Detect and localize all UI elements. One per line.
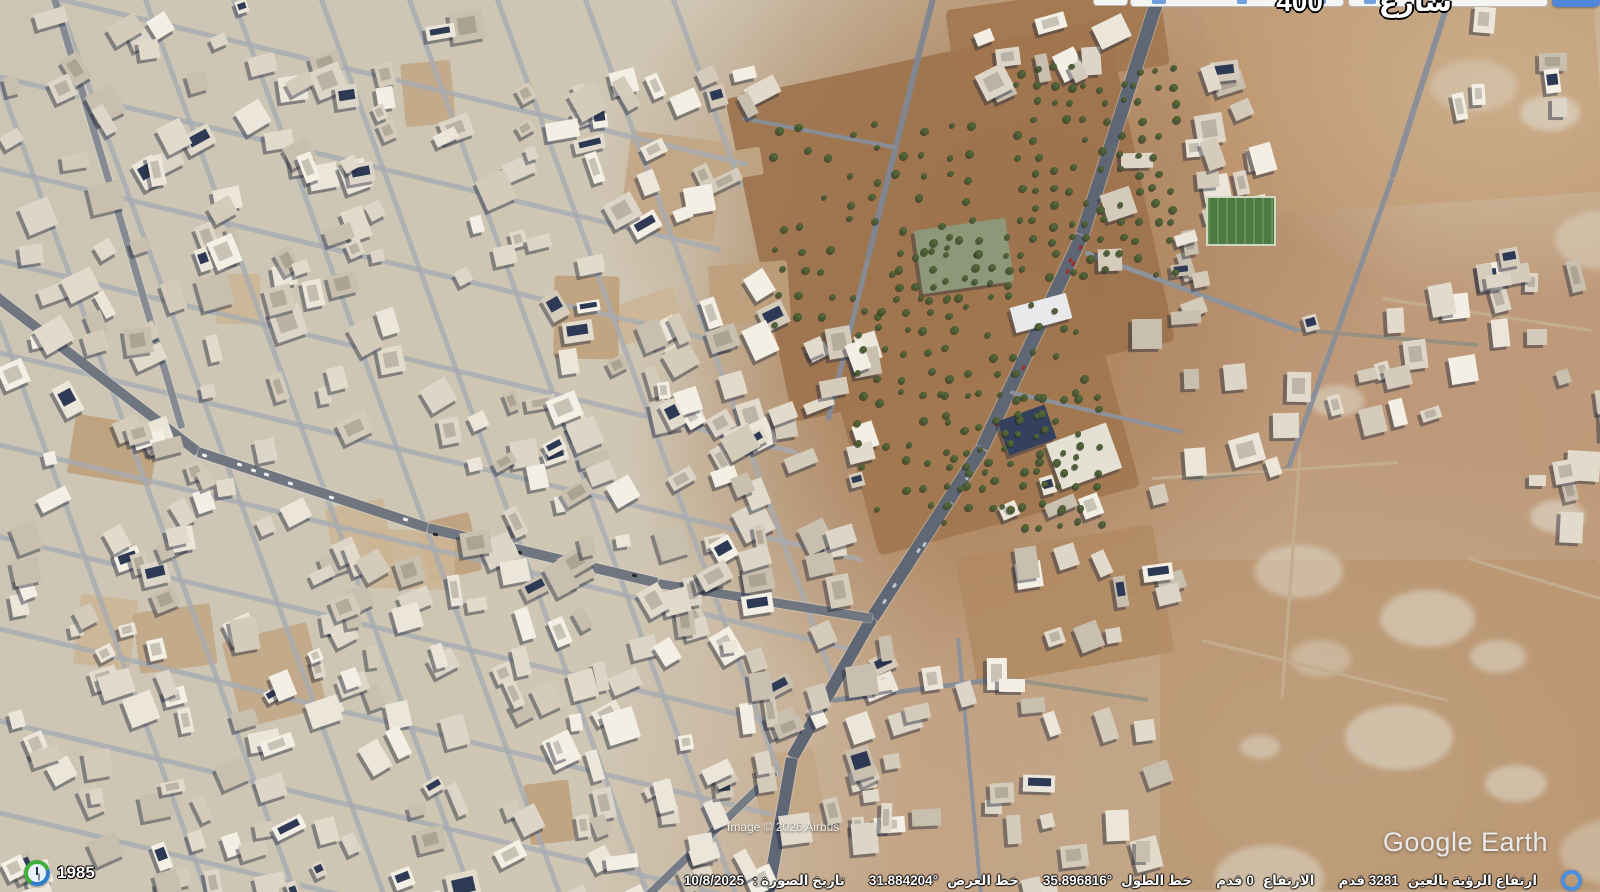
toolbar-blue-button[interactable]: [1552, 0, 1600, 7]
tree: [1004, 253, 1009, 258]
tree: [1167, 237, 1173, 243]
tree: [1002, 446, 1007, 451]
tree: [1058, 523, 1063, 528]
tree: [1046, 273, 1054, 281]
tree: [1116, 250, 1123, 257]
tree: [1078, 505, 1084, 511]
tree: [916, 194, 924, 202]
street-name-label: شارع 400: [1092, 0, 1452, 18]
tree: [901, 351, 907, 357]
tree: [1098, 236, 1104, 242]
tree: [991, 477, 998, 484]
tree: [899, 377, 906, 384]
tree: [1074, 329, 1080, 335]
tree: [1170, 84, 1178, 92]
tree: [920, 392, 927, 399]
tree: [876, 324, 881, 329]
tree: [1172, 269, 1179, 276]
tree: [928, 309, 934, 315]
tree: [899, 389, 904, 394]
tree: [1034, 413, 1040, 419]
tree: [1139, 135, 1146, 142]
tree: [1099, 166, 1105, 172]
tree: [1156, 171, 1162, 177]
tree: [1118, 166, 1123, 171]
elevation-value: 0 قدم: [1216, 873, 1254, 889]
tree: [1121, 234, 1127, 240]
tree: [1168, 219, 1174, 225]
tree: [985, 332, 991, 338]
tree: [946, 375, 954, 383]
history-year-label: 1985: [57, 863, 95, 883]
tree: [1083, 234, 1090, 241]
longitude-field: خط الطول 35.896816°: [1043, 873, 1192, 889]
tree: [856, 332, 862, 338]
tree: [1150, 154, 1157, 161]
tree: [1139, 118, 1147, 126]
tree: [894, 296, 900, 302]
tree: [930, 239, 938, 247]
tree: [1097, 206, 1105, 214]
tree: [1118, 202, 1124, 208]
image-date-value: 10/8/2025: [684, 873, 744, 889]
tree: [1051, 185, 1057, 191]
tree: [1099, 521, 1106, 528]
tree: [1075, 395, 1083, 403]
eye-altitude-label: ارتفاع الرؤية بالعين: [1408, 873, 1537, 889]
imagery-credit: Image © 2026 Airbus: [727, 820, 839, 834]
tree: [1030, 137, 1037, 144]
tree: [1084, 200, 1089, 205]
tree: [1169, 206, 1177, 214]
tree: [919, 295, 925, 301]
tree: [883, 443, 890, 450]
tree: [968, 122, 976, 130]
tree: [903, 309, 910, 316]
tree: [951, 326, 959, 334]
tree: [1053, 418, 1059, 424]
tree: [1082, 221, 1088, 227]
tree: [1135, 254, 1143, 262]
tree: [1074, 454, 1080, 460]
tree: [931, 284, 937, 290]
elevation-field: الارتفاع 0 قدم: [1216, 873, 1314, 889]
tree: [1118, 218, 1125, 225]
tree: [1099, 147, 1107, 155]
eye-altitude-field: ارتفاع الرؤية بالعين 3281 قدم: [1338, 873, 1537, 889]
tree: [819, 313, 827, 321]
tree: [903, 487, 910, 494]
tree: [830, 294, 837, 301]
tree: [903, 456, 910, 463]
tree: [947, 234, 952, 239]
tree: [1058, 507, 1066, 515]
tree: [1033, 170, 1039, 176]
tree: [921, 248, 929, 256]
tree: [1136, 218, 1143, 225]
tree: [1137, 188, 1145, 196]
tree: [1061, 469, 1068, 476]
tree: [1018, 217, 1024, 223]
tree: [848, 202, 854, 208]
tree: [1103, 100, 1108, 105]
tree: [947, 464, 953, 470]
tree: [1080, 116, 1086, 122]
tree: [1104, 250, 1110, 256]
tree: [827, 246, 835, 254]
tree: [912, 283, 919, 290]
tree: [1014, 131, 1022, 139]
tree: [1029, 302, 1035, 308]
tree: [945, 483, 951, 489]
tree: [883, 346, 889, 352]
tree: [1035, 97, 1041, 103]
tree: [1040, 500, 1046, 506]
tree: [1117, 151, 1123, 157]
tree: [818, 269, 824, 275]
tree: [780, 266, 786, 272]
tree: [1005, 282, 1012, 289]
tree: [966, 150, 974, 158]
tree: [993, 417, 1001, 425]
tree: [854, 420, 861, 427]
tree: [875, 179, 882, 186]
tree: [1168, 188, 1174, 194]
tree: [976, 390, 982, 396]
tree: [1061, 450, 1066, 455]
tree: [1102, 266, 1109, 273]
tree: [1154, 272, 1159, 277]
tree: [1076, 431, 1082, 437]
tree: [929, 502, 935, 508]
tree: [944, 296, 951, 303]
tree: [1033, 205, 1039, 211]
tree: [805, 147, 812, 154]
image-date-field: تاريخ الصورة : 10/8/2025: [684, 873, 845, 889]
tree: [890, 271, 896, 277]
tree: [1022, 524, 1029, 531]
tree: [1036, 154, 1044, 162]
tree: [1036, 458, 1044, 466]
tree: [1036, 525, 1042, 531]
google-earth-viewport: شارع 400 Image © 2026 Airbus Google Eart…: [0, 0, 1600, 892]
tree: [1031, 117, 1036, 122]
tree: [872, 121, 878, 127]
tree: [943, 412, 950, 419]
tree: [907, 442, 912, 447]
tree: [1061, 325, 1068, 332]
tree: [1037, 450, 1045, 458]
tree: [855, 370, 861, 376]
tree: [965, 504, 972, 511]
tree: [975, 250, 982, 257]
tree: [1149, 184, 1156, 191]
tree: [1132, 238, 1138, 244]
tree: [990, 505, 997, 512]
tree: [1012, 370, 1020, 378]
tree: [1019, 503, 1026, 510]
tree: [1075, 518, 1081, 524]
tree: [1136, 153, 1142, 159]
tree: [929, 368, 936, 375]
tree: [951, 455, 959, 463]
tree: [1051, 201, 1058, 208]
tree: [1094, 483, 1101, 490]
tree: [1104, 118, 1111, 125]
tree: [1136, 172, 1144, 180]
tree: [770, 153, 778, 161]
tree: [972, 279, 978, 285]
tree: [1073, 483, 1079, 489]
tree: [963, 198, 970, 205]
tree: [1021, 468, 1029, 476]
tree: [930, 266, 937, 273]
sports-field: [1206, 196, 1276, 246]
tree: [939, 223, 946, 230]
tree: [860, 346, 867, 353]
longitude-label: خط الطول: [1121, 873, 1192, 889]
tree: [948, 171, 954, 177]
tree: [1034, 468, 1040, 474]
tree: [985, 459, 993, 467]
tree: [1029, 217, 1035, 223]
tree: [1015, 155, 1021, 161]
tree: [1066, 188, 1073, 195]
tree: [998, 392, 1003, 397]
tree: [963, 482, 971, 490]
tree: [1153, 68, 1158, 73]
tree: [980, 485, 987, 492]
tree: [961, 427, 969, 435]
tree: [920, 417, 928, 425]
tree: [963, 275, 968, 280]
tree: [896, 284, 904, 292]
tree: [945, 245, 950, 250]
tree: [1069, 64, 1075, 70]
tree: [919, 327, 927, 335]
tree: [964, 450, 970, 456]
tree: [781, 226, 788, 233]
tree: [1053, 250, 1060, 257]
tree: [942, 345, 949, 352]
tree: [946, 313, 952, 319]
tree: [1006, 292, 1012, 298]
tree: [1173, 116, 1181, 124]
tree: [1071, 269, 1077, 275]
tree: [1034, 81, 1041, 88]
tree: [965, 370, 972, 377]
image-date-label: تاريخ الصورة :: [753, 873, 845, 889]
tree: [944, 449, 950, 455]
tree: [847, 216, 852, 221]
tree: [944, 252, 949, 257]
elevation-label: الارتفاع: [1263, 873, 1315, 889]
tree: [948, 155, 953, 160]
tree: [1053, 459, 1061, 467]
tree: [1036, 66, 1042, 72]
tree: [874, 376, 881, 383]
tree: [776, 292, 782, 298]
map-trees-layer: [0, 0, 1600, 892]
tree: [1156, 218, 1164, 226]
tree: [1033, 188, 1038, 193]
tree: [1000, 504, 1005, 509]
tree: [1067, 100, 1073, 106]
tree: [983, 469, 988, 474]
eye-altitude-value: 3281 قدم: [1338, 873, 1398, 889]
tree: [926, 297, 933, 304]
tree: [1005, 234, 1011, 240]
tree: [1080, 272, 1088, 280]
status-bar: ارتفاع الرؤية بالعين 3281 قدم الارتفاع 0…: [684, 870, 1582, 891]
tree: [972, 264, 980, 272]
tree: [1101, 216, 1107, 222]
tree: [1063, 115, 1071, 123]
tree: [944, 503, 950, 509]
tree: [1156, 85, 1162, 91]
tree: [988, 280, 994, 286]
tree: [795, 292, 803, 300]
tree: [1014, 82, 1019, 87]
tree: [772, 322, 778, 328]
tree: [1070, 234, 1076, 240]
tree: [913, 254, 920, 261]
tree: [776, 127, 784, 135]
tree: [1087, 255, 1095, 263]
tree: [1152, 199, 1160, 207]
tree: [1006, 267, 1013, 274]
tree: [794, 313, 801, 320]
tree: [851, 295, 856, 300]
tree: [1097, 444, 1103, 450]
tree: [1095, 470, 1102, 477]
tree: [966, 393, 972, 399]
latitude-label: خط العرض: [947, 873, 1019, 889]
tree: [869, 194, 876, 201]
streaming-progress-ring-icon: [1561, 870, 1582, 891]
tree: [1054, 353, 1059, 358]
tree: [799, 249, 806, 256]
tree: [1034, 434, 1040, 440]
tree: [942, 520, 947, 525]
tree: [898, 250, 904, 256]
tree: [802, 267, 810, 275]
tree: [1073, 389, 1079, 395]
tree: [964, 304, 969, 309]
tree: [1035, 323, 1043, 331]
tree: [1081, 83, 1086, 88]
tree: [878, 308, 886, 316]
tree: [851, 132, 857, 138]
tree: [860, 392, 868, 400]
tree: [950, 123, 955, 128]
tree: [922, 173, 928, 179]
tree: [825, 154, 833, 162]
tree: [797, 223, 803, 229]
tree: [1081, 375, 1089, 383]
tree: [919, 152, 924, 157]
tree: [1053, 100, 1058, 105]
tree: [976, 424, 982, 430]
tree: [1007, 506, 1015, 514]
tree: [1096, 406, 1103, 413]
historical-imagery-indicator[interactable]: 1985: [24, 860, 95, 886]
satellite-map[interactable]: [0, 0, 1600, 892]
tree: [1042, 481, 1048, 487]
tree: [943, 278, 949, 284]
tree: [1010, 354, 1017, 361]
tree: [920, 485, 927, 492]
tree: [1119, 132, 1126, 139]
tree: [990, 354, 998, 362]
tree: [1002, 430, 1010, 438]
tree: [1070, 221, 1076, 227]
tree: [978, 447, 983, 452]
google-earth-watermark: Google Earth: [1383, 827, 1548, 858]
tree: [1056, 483, 1061, 488]
tree: [822, 195, 827, 200]
tree: [955, 294, 963, 302]
tree: [1020, 482, 1027, 489]
tree: [929, 248, 935, 254]
tree: [1049, 239, 1056, 246]
tree: [1135, 98, 1141, 104]
tree: [965, 177, 973, 185]
tree: [1097, 87, 1103, 93]
tree: [859, 464, 865, 470]
tree: [1021, 394, 1028, 401]
tree: [1050, 223, 1057, 230]
longitude-value: 35.896816°: [1043, 873, 1112, 889]
latitude-value: 31.884204°: [869, 873, 938, 889]
tree: [900, 227, 907, 234]
tree: [1131, 83, 1136, 88]
tree: [1083, 137, 1088, 142]
tree: [958, 486, 964, 492]
latitude-field: خط العرض 31.884204°: [869, 873, 1019, 889]
tree: [1019, 185, 1026, 192]
tree: [872, 218, 879, 225]
tree: [1020, 266, 1026, 272]
tree: [1052, 308, 1058, 314]
tree: [946, 419, 951, 424]
tree: [795, 124, 803, 132]
tree: [1171, 65, 1177, 71]
tree: [1015, 431, 1021, 437]
tree: [1069, 84, 1076, 91]
tree: [1071, 164, 1076, 169]
tree: [876, 399, 884, 407]
tree: [862, 308, 868, 314]
tree: [966, 470, 973, 477]
tree: [925, 349, 932, 356]
tree: [1013, 396, 1021, 404]
tree: [976, 237, 983, 244]
tree: [892, 170, 900, 178]
tree: [995, 371, 1001, 377]
tree: [1061, 396, 1068, 403]
tree: [925, 460, 931, 466]
tree: [1018, 70, 1026, 78]
tree: [1050, 63, 1057, 70]
tree: [970, 217, 976, 223]
historical-imagery-clock-icon[interactable]: [24, 860, 50, 886]
tree: [1173, 100, 1180, 107]
tree: [1051, 167, 1057, 173]
tree: [1052, 82, 1059, 89]
tree: [989, 264, 996, 271]
tree: [875, 145, 880, 150]
